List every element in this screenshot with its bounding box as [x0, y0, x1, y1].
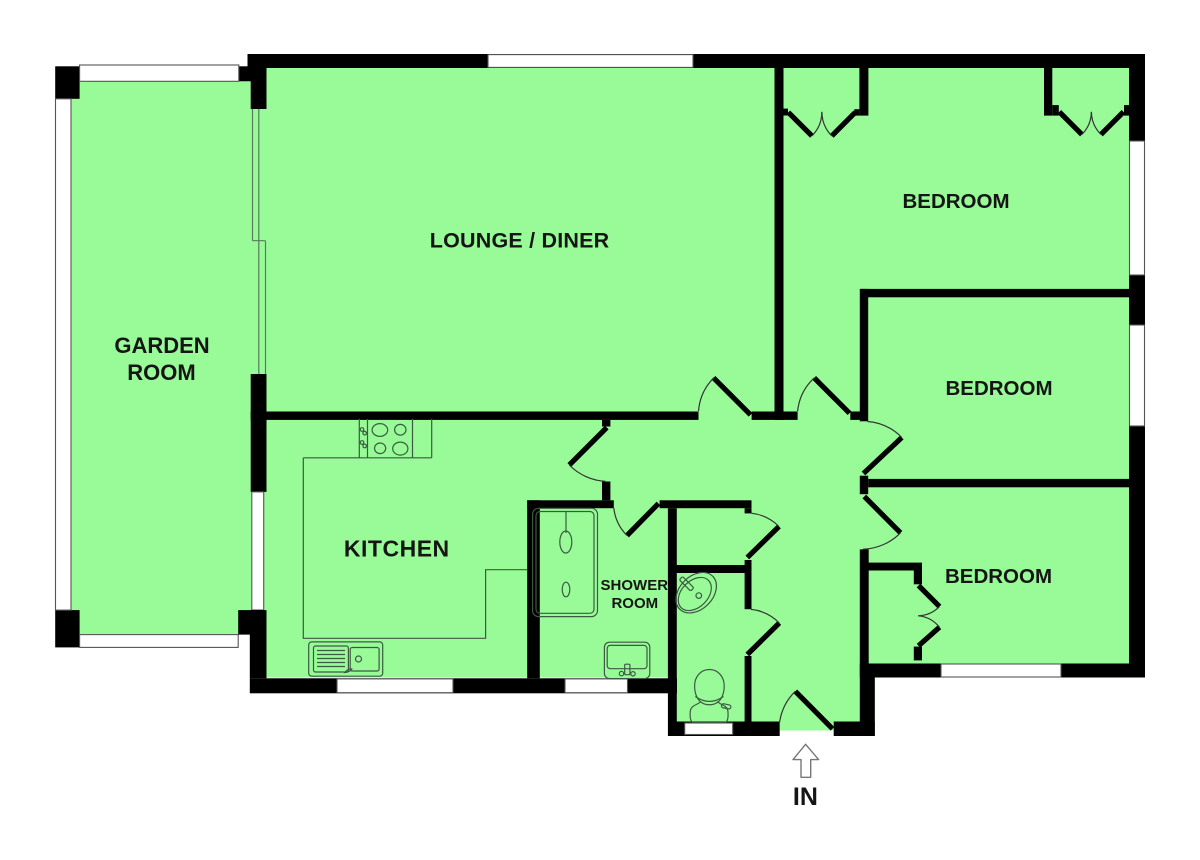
svg-text:ROOM: ROOM — [611, 595, 658, 612]
svg-text:LOUNGE / DINER: LOUNGE / DINER — [430, 229, 610, 253]
svg-text:GARDEN: GARDEN — [114, 333, 209, 358]
svg-text:BEDROOM: BEDROOM — [902, 190, 1009, 213]
svg-text:ROOM: ROOM — [127, 360, 195, 385]
svg-text:KITCHEN: KITCHEN — [344, 536, 450, 562]
svg-text:BEDROOM: BEDROOM — [945, 565, 1052, 588]
svg-text:BEDROOM: BEDROOM — [945, 377, 1052, 400]
svg-text:SHOWER: SHOWER — [601, 577, 669, 594]
svg-text:IN: IN — [793, 783, 818, 811]
